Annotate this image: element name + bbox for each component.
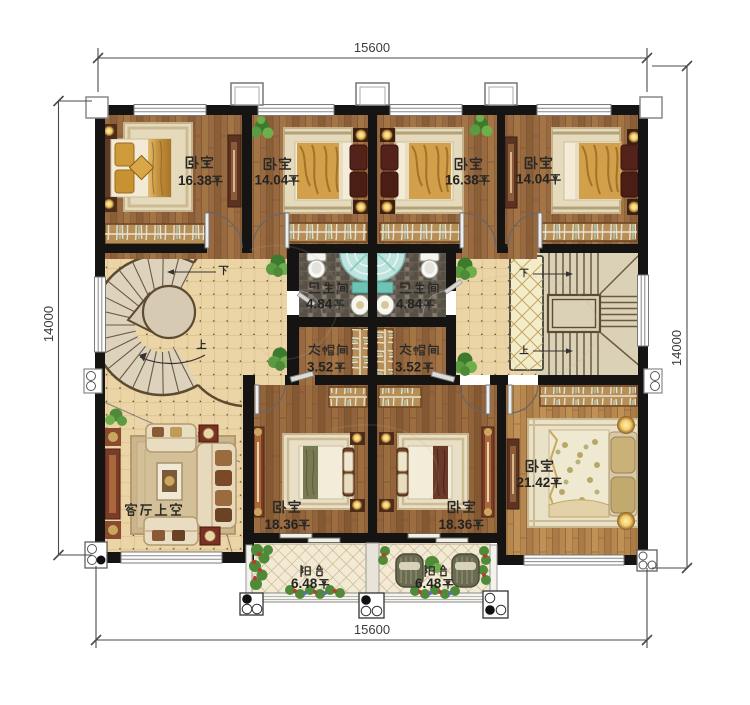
svg-text:3.52: 3.52 xyxy=(307,360,333,375)
svg-text:18.36: 18.36 xyxy=(439,517,473,532)
svg-text:15600: 15600 xyxy=(354,622,390,637)
svg-text:3.52: 3.52 xyxy=(395,360,421,375)
svg-text:14.04: 14.04 xyxy=(516,172,550,187)
svg-text:14000: 14000 xyxy=(41,306,56,342)
svg-text:4.84: 4.84 xyxy=(306,297,333,312)
svg-text:14000: 14000 xyxy=(669,330,684,366)
svg-text:6.48: 6.48 xyxy=(415,576,442,591)
svg-text:6.48: 6.48 xyxy=(291,576,318,591)
svg-text:21.42: 21.42 xyxy=(517,475,551,490)
svg-text:16.38: 16.38 xyxy=(445,173,479,188)
svg-text:4.84: 4.84 xyxy=(396,297,423,312)
svg-text:14.04: 14.04 xyxy=(255,173,289,188)
svg-text:18.36: 18.36 xyxy=(265,517,299,532)
svg-text:16.38: 16.38 xyxy=(178,173,212,188)
svg-text:15600: 15600 xyxy=(354,40,390,55)
